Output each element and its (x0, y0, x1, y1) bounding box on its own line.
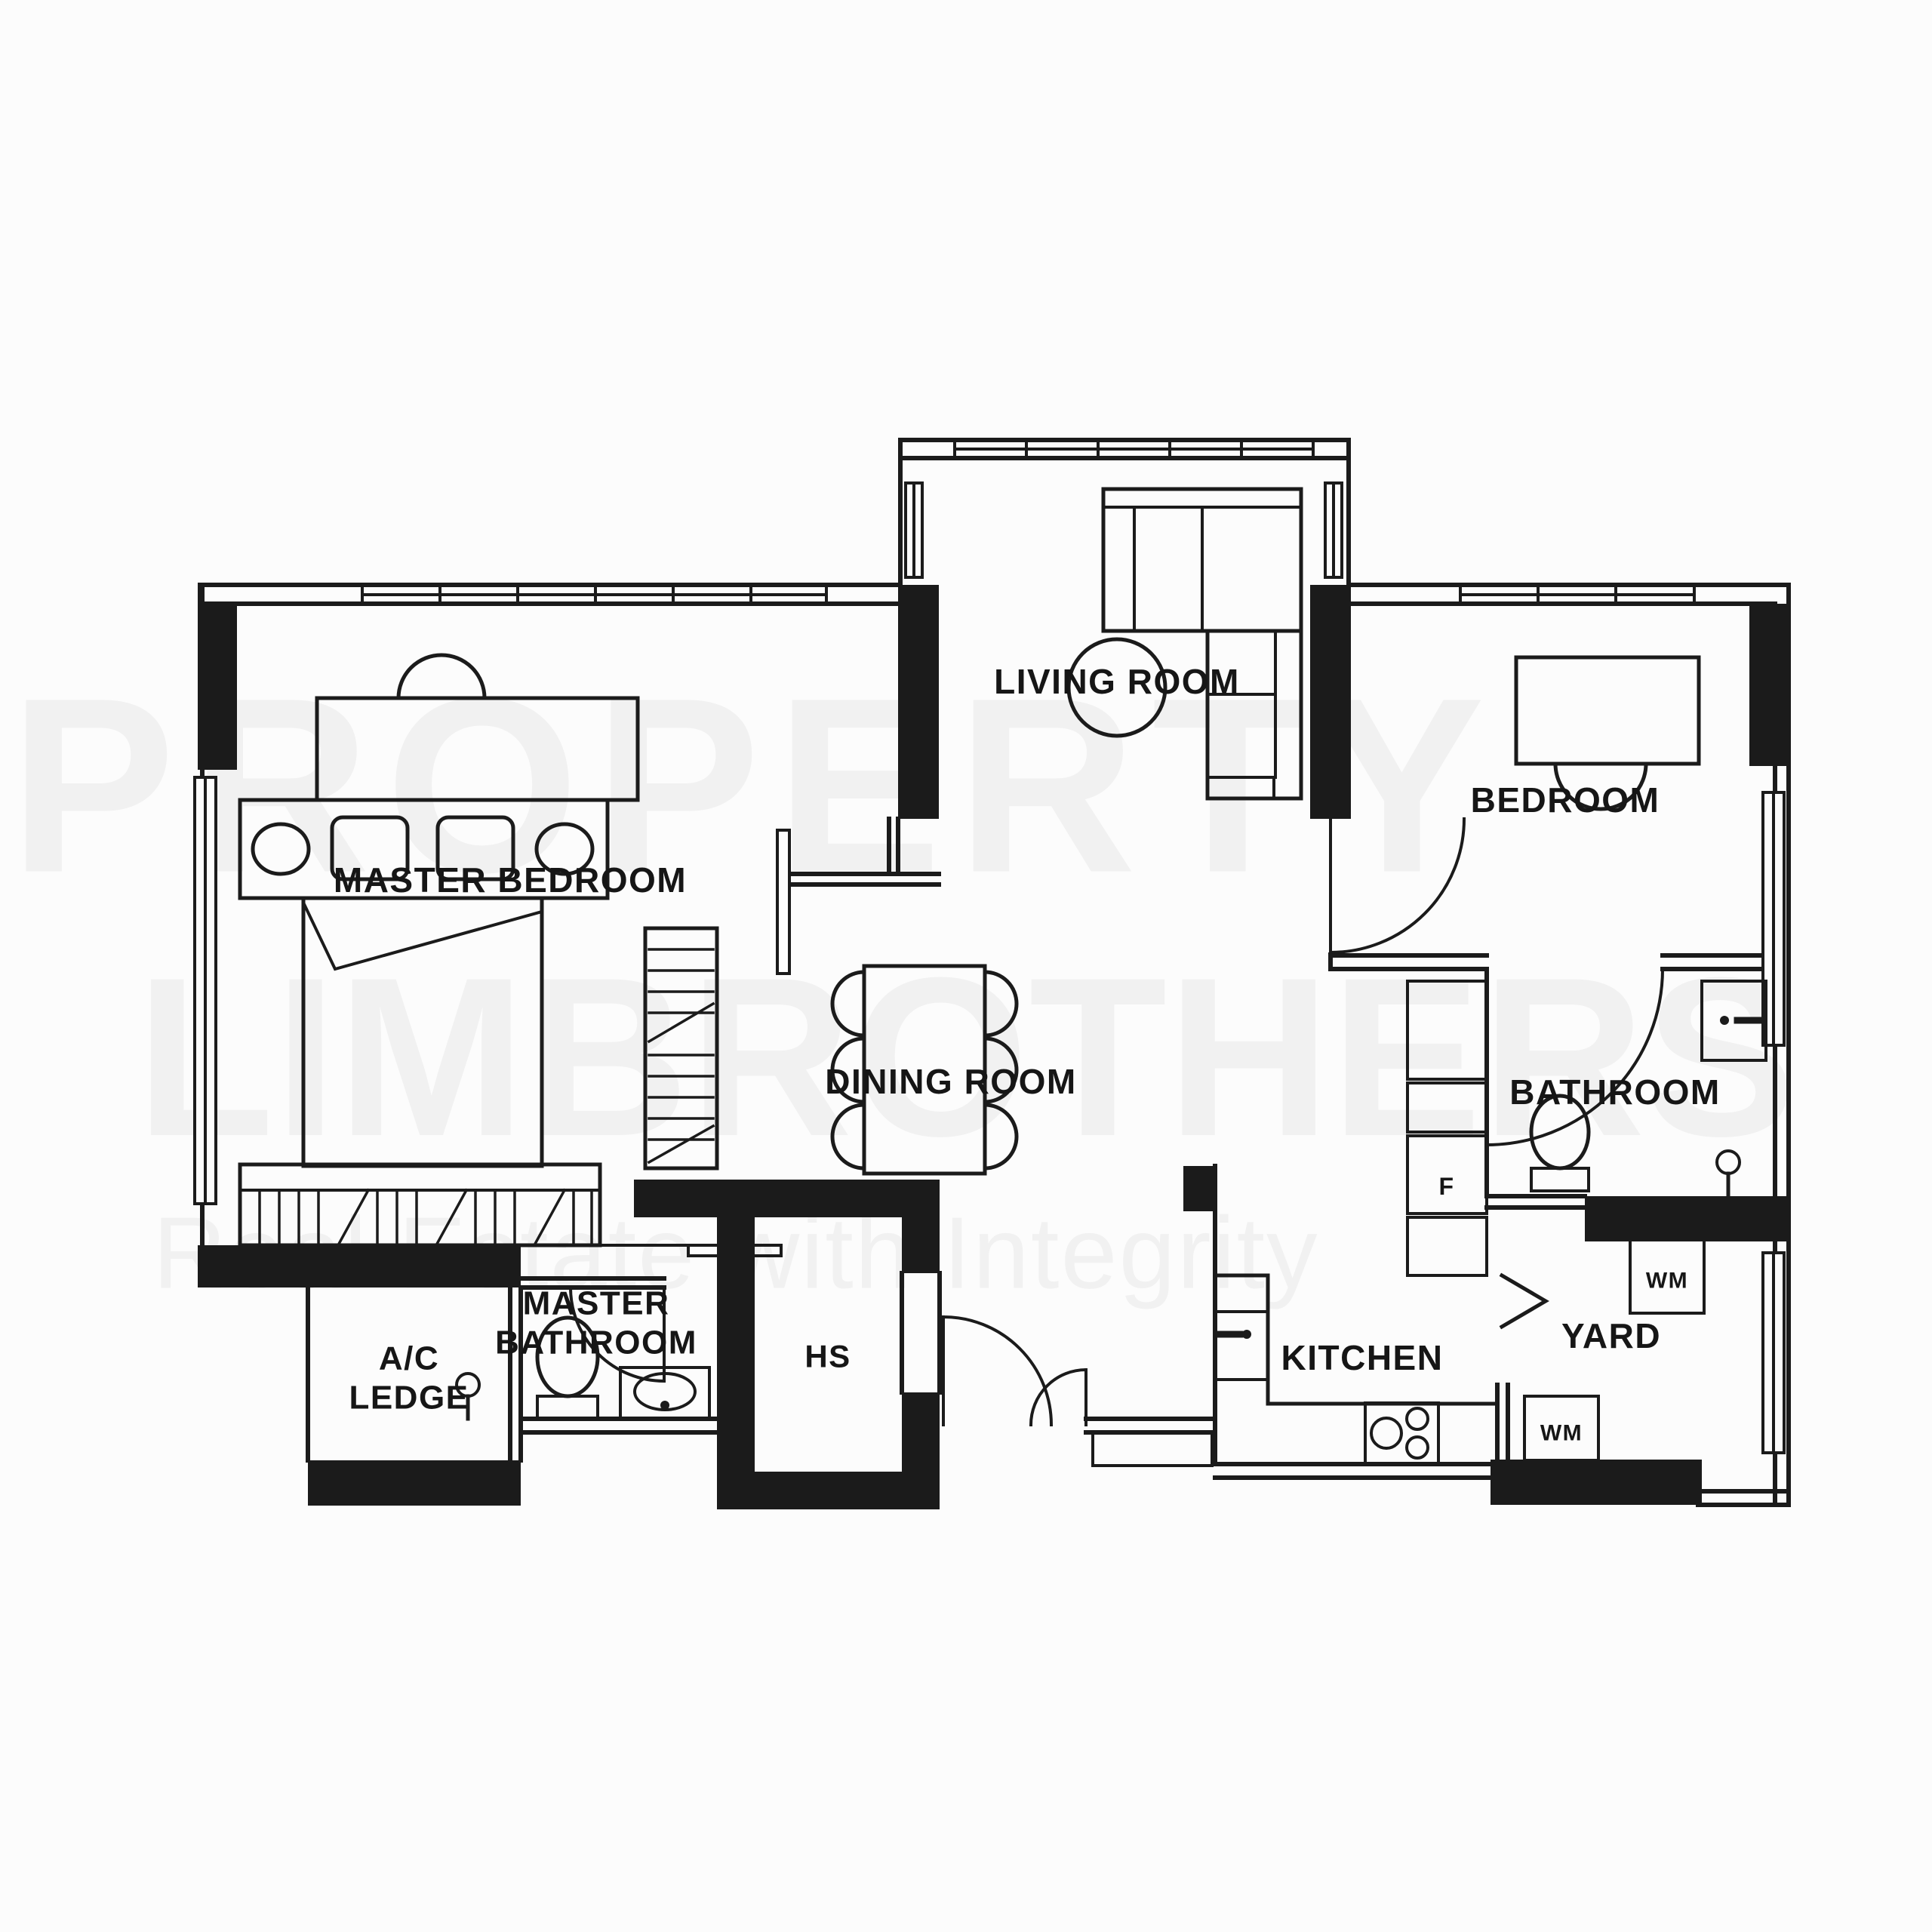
wall-block-ac-bottom (308, 1460, 521, 1506)
label-living-room: LIVING ROOM (994, 662, 1240, 701)
label-master-bathroom-line2: BATHROOM (495, 1324, 697, 1361)
bathroom-sink-drain (1720, 1016, 1729, 1025)
label-washer-bottom: WM (1540, 1421, 1583, 1446)
wall-block-hs-right-upper (902, 1217, 940, 1273)
wall-block-kitchen-corner (1183, 1166, 1215, 1211)
label-ac-ledge-line1: A/C (379, 1340, 439, 1377)
label-washer-top: WM (1646, 1269, 1688, 1294)
label-bedroom: BEDROOM (1471, 780, 1660, 820)
label-master-bathroom-line1: MASTER (523, 1285, 670, 1322)
wall-block-living-left (898, 585, 939, 819)
wall-block-masterbed-bottom (198, 1245, 521, 1287)
label-fridge: F (1438, 1173, 1454, 1200)
label-dining-room: DINING ROOM (825, 1062, 1076, 1101)
label-yard: YARD (1561, 1316, 1661, 1355)
wall-block-hs-left (717, 1217, 755, 1509)
label-ac-ledge-line2: LEDGE (349, 1380, 469, 1417)
wall-block-living-right (1310, 585, 1351, 819)
label-household-shelter: HS (804, 1339, 851, 1374)
label-kitchen: KITCHEN (1281, 1338, 1444, 1377)
label-bathroom: BATHROOM (1509, 1072, 1720, 1112)
wall-block-bathroom-bottom (1585, 1196, 1789, 1241)
wall-block-hs-right-lower (902, 1392, 940, 1509)
wall-block-top-right (1749, 604, 1789, 766)
wall-block-top-left (198, 604, 237, 770)
kitchen-sink-drain (1242, 1330, 1251, 1339)
wall-block-yard-bottom (1491, 1460, 1702, 1505)
label-master-bedroom: MASTER BEDROOM (334, 860, 687, 900)
master-bathroom-basin-drain (660, 1401, 669, 1410)
floor-plan-page: PROPERTY LIMBROTHERS Real Estate with In… (0, 0, 1932, 1932)
wall-block-hs-top (634, 1180, 940, 1217)
